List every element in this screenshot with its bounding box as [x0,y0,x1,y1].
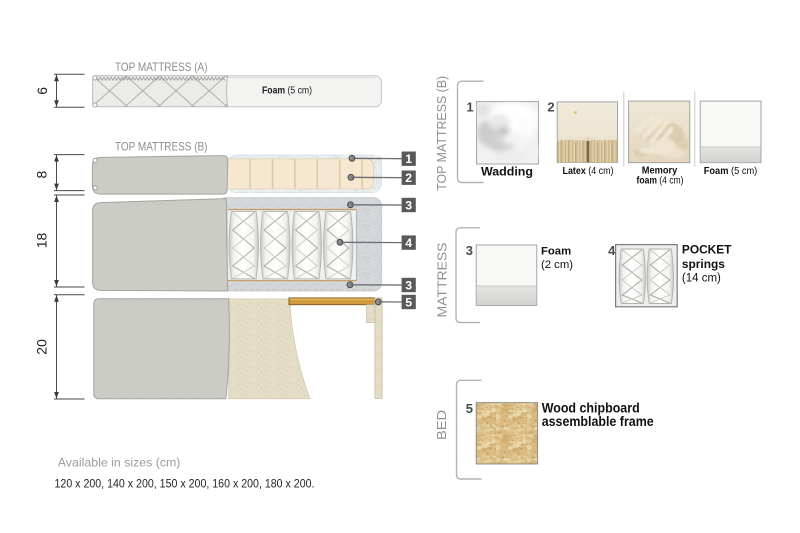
svg-text:(2 cm): (2 cm) [541,259,573,271]
svg-text:120 x 200, 140 x 200, 150 x 20: 120 x 200, 140 x 200, 150 x 200, 160 x 2… [55,478,315,490]
svg-text:TOP MATTRESS (B): TOP MATTRESS (B) [434,76,449,191]
svg-text:5: 5 [405,295,412,309]
svg-text:Available in sizes (cm): Available in sizes (cm) [58,456,181,470]
svg-text:3: 3 [405,278,412,292]
svg-text:MATTRESS: MATTRESS [435,242,450,317]
svg-text:TOP MATTRESS (B): TOP MATTRESS (B) [115,139,208,153]
svg-text:4: 4 [608,243,616,258]
svg-text:6: 6 [34,87,50,95]
svg-text:springs: springs [682,257,725,271]
svg-text:Wadding: Wadding [481,166,533,179]
svg-text:assemblable frame: assemblable frame [542,414,654,429]
svg-text:TOP MATTRESS (A): TOP MATTRESS (A) [115,60,208,74]
svg-text:(14 cm): (14 cm) [682,272,721,284]
svg-text:1: 1 [405,152,412,166]
svg-text:Foam (5 cm): Foam (5 cm) [704,166,758,177]
svg-text:18: 18 [34,233,50,249]
svg-text:5: 5 [466,401,473,416]
svg-text:Latex (4 cm): Latex (4 cm) [563,166,614,177]
svg-text:1: 1 [466,100,473,115]
svg-text:2: 2 [547,100,554,115]
svg-text:Foam: Foam [541,246,571,258]
svg-text:3: 3 [466,243,473,258]
svg-text:2: 2 [405,171,412,185]
svg-text:4: 4 [405,236,412,250]
svg-text:8: 8 [34,170,50,178]
svg-text:POCKET: POCKET [682,243,732,257]
svg-text:BED: BED [434,410,449,440]
svg-text:20: 20 [34,339,50,355]
svg-text:foam (4 cm): foam (4 cm) [637,175,684,186]
svg-text:Foam (5 cm): Foam (5 cm) [262,86,312,97]
svg-text:3: 3 [405,198,412,212]
